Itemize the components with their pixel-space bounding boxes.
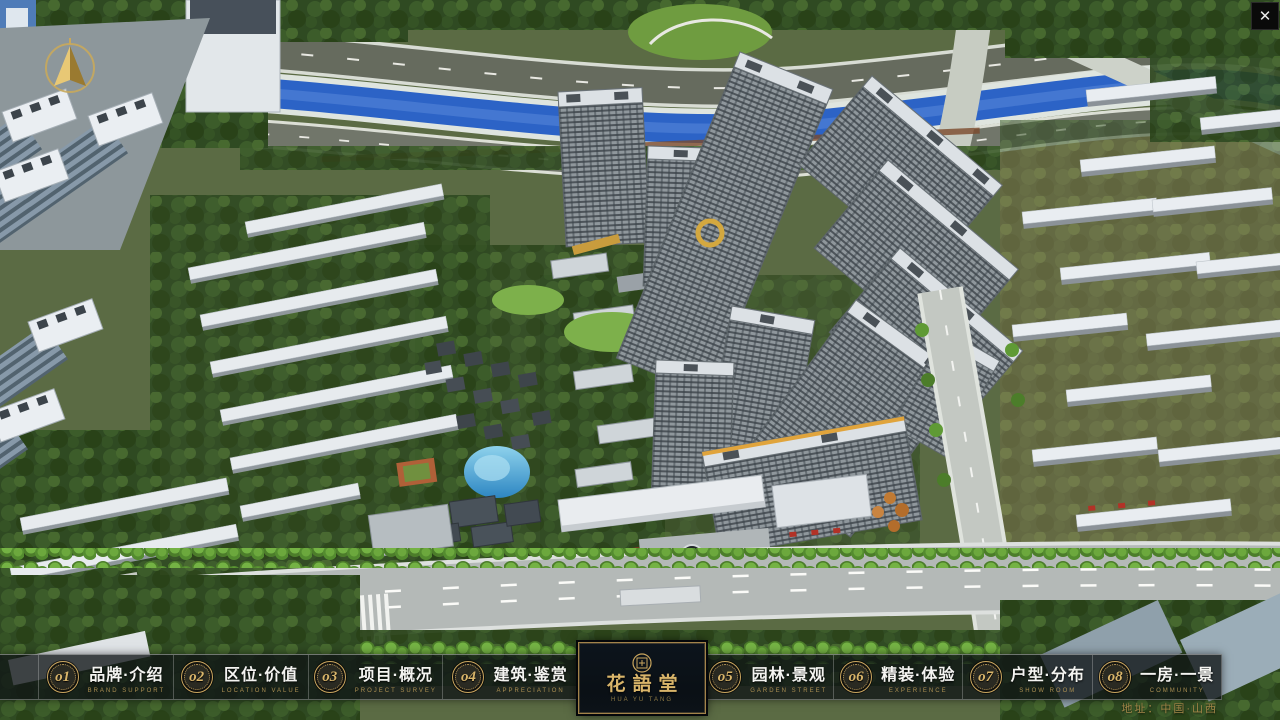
nav-number-badge: o7 bbox=[970, 661, 1002, 693]
nav-number: o7 bbox=[978, 669, 993, 686]
nav-number: o8 bbox=[1108, 669, 1123, 686]
nav-number: o2 bbox=[189, 669, 204, 686]
nav-number-badge: o3 bbox=[314, 661, 346, 693]
nav-number: o3 bbox=[322, 669, 337, 686]
compass-north-arrow-icon bbox=[42, 36, 98, 96]
nav-label-cn: 精装·体验 bbox=[881, 661, 955, 685]
nav-item-interior-experience[interactable]: o6 精装·体验 EXPERIENCE bbox=[834, 655, 964, 699]
bottom-nav-left: o1 品牌·介绍 BRAND SUPPORT o2 区位·价值 LOCATION… bbox=[0, 654, 578, 700]
nav-item-location-value[interactable]: o2 区位·价值 LOCATION VALUE bbox=[174, 655, 309, 699]
nav-number-badge: o2 bbox=[181, 661, 213, 693]
nav-label-en: GARDEN STREET bbox=[750, 688, 827, 694]
nav-label-en: SHOW ROOM bbox=[1019, 688, 1076, 694]
nav-label-cn: 建筑·鉴赏 bbox=[493, 661, 567, 685]
address-text: 地址：中国·山西 bbox=[1121, 700, 1218, 716]
nav-item-garden-landscape[interactable]: o5 园林·景观 GARDEN STREET bbox=[704, 655, 834, 699]
nav-spacer bbox=[0, 655, 39, 699]
nav-number: o6 bbox=[849, 669, 864, 686]
nav-item-architecture[interactable]: o4 建筑·鉴赏 APPRECIATION bbox=[443, 655, 578, 699]
nav-label-cn: 园林·景观 bbox=[752, 661, 826, 685]
nav-label-cn: 区位·价值 bbox=[224, 661, 298, 685]
nav-number-badge: o8 bbox=[1099, 661, 1131, 693]
aerial-masterplan-render bbox=[0, 0, 1280, 720]
nav-label-cn: 项目·概况 bbox=[359, 661, 433, 685]
nav-label-cn: 品牌·介绍 bbox=[89, 661, 163, 685]
tower bbox=[558, 88, 650, 247]
nav-label-en: BRAND SUPPORT bbox=[88, 688, 166, 694]
nav-item-unit-layouts[interactable]: o7 户型·分布 SHOW ROOM bbox=[963, 655, 1093, 699]
brand-name: 花語堂 bbox=[599, 675, 684, 696]
brand-subtext: HUA YU TANG bbox=[611, 697, 673, 703]
nav-number: o1 bbox=[55, 669, 70, 686]
nav-label-cn: 户型·分布 bbox=[1011, 661, 1085, 685]
nav-item-room-views[interactable]: o8 一房·一景 COMMUNITY bbox=[1093, 655, 1223, 699]
nav-item-project-survey[interactable]: o3 项目·概况 PROJECT SURVEY bbox=[309, 655, 444, 699]
bottom-nav-right: o5 园林·景观 GARDEN STREET o6 精装·体验 EXPERIEN… bbox=[704, 654, 1222, 700]
nav-number: o4 bbox=[461, 669, 476, 686]
nav-label-en: COMMUNITY bbox=[1150, 688, 1205, 694]
nav-number-badge: o1 bbox=[47, 661, 79, 693]
nav-item-brand-intro[interactable]: o1 品牌·介绍 BRAND SUPPORT bbox=[39, 655, 174, 699]
masterplan-viewer: ✕ o1 品牌·介绍 BRAND SUPPORT o2 区位·价值 LOCATI… bbox=[0, 0, 1280, 720]
brand-seal-icon bbox=[632, 653, 652, 673]
nav-number-badge: o6 bbox=[840, 661, 872, 693]
nav-label-en: PROJECT SURVEY bbox=[355, 688, 437, 694]
nav-label-en: APPRECIATION bbox=[497, 688, 565, 694]
nav-number: o5 bbox=[718, 669, 733, 686]
nav-label-cn: 一房·一景 bbox=[1140, 661, 1214, 685]
nav-label-en: EXPERIENCE bbox=[889, 688, 948, 694]
nav-number-badge: o4 bbox=[452, 661, 484, 693]
close-button[interactable]: ✕ bbox=[1251, 2, 1279, 30]
brand-logo-panel[interactable]: 花語堂 HUA YU TANG bbox=[578, 642, 706, 714]
nav-label-en: LOCATION VALUE bbox=[222, 688, 301, 694]
nav-number-badge: o5 bbox=[709, 661, 741, 693]
garden-top bbox=[628, 4, 772, 60]
